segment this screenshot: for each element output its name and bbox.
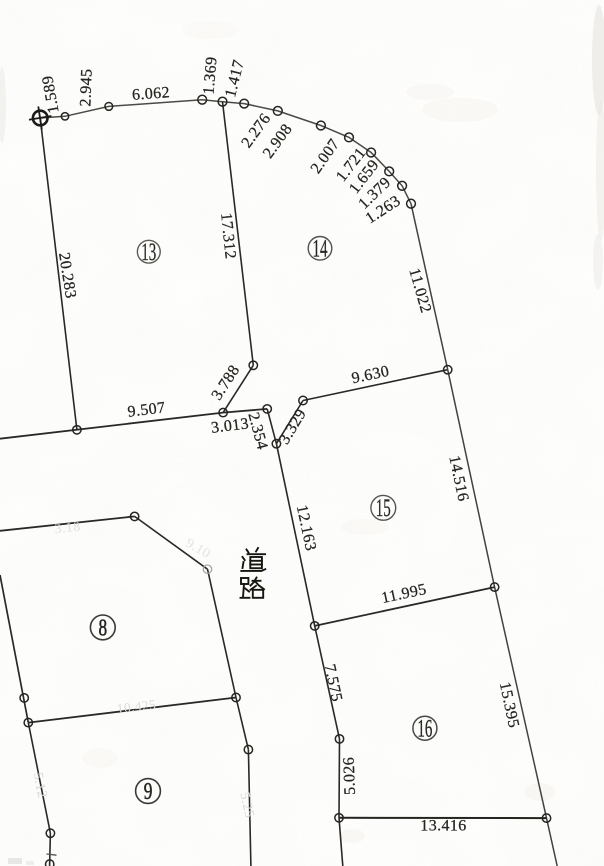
svg-text:5.026: 5.026	[341, 757, 359, 796]
svg-text:15: 15	[376, 495, 391, 522]
svg-text:16: 16	[417, 716, 432, 743]
svg-text:9: 9	[144, 777, 153, 805]
svg-text:3.18: 3.18	[54, 520, 82, 538]
svg-text:13.416: 13.416	[420, 818, 466, 835]
svg-text:6.062: 6.062	[131, 84, 170, 104]
svg-text:2.945: 2.945	[77, 68, 95, 107]
svg-text:1.369: 1.369	[200, 56, 220, 95]
svg-text:13: 13	[141, 239, 156, 266]
svg-text:14: 14	[313, 236, 328, 263]
svg-text:8: 8	[98, 614, 107, 642]
